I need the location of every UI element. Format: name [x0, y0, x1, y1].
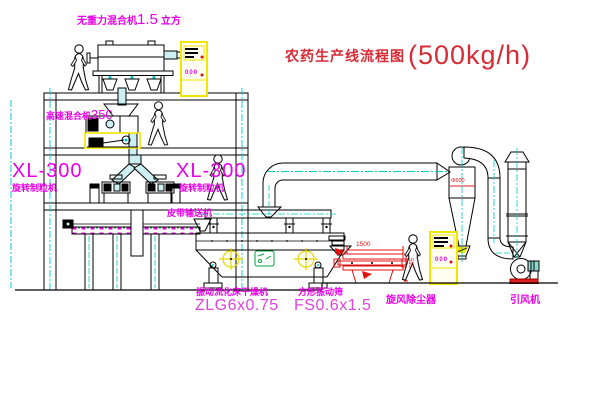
sieve-name: 方形振动筛 — [298, 288, 343, 297]
granulator-right-name: 旋转制粒机 — [179, 184, 224, 193]
worker-1 — [69, 45, 89, 90]
sieve-width-dimension: 1500 — [356, 242, 370, 249]
page-title: 农药生产线流程图 (500kg/h) — [285, 42, 531, 69]
gravity-mixer-name: 无重力混合机 — [77, 16, 137, 27]
fan-label: 引风机 — [510, 296, 540, 306]
high-speed-mixer-name: 高速混合机 — [46, 111, 91, 121]
green-stamp-icon — [255, 251, 274, 266]
flow-diagram-canvas: 无重力混合机1.5立方 农药生产线流程图 (500kg/h) 高速混合机350 … — [0, 0, 600, 403]
dryer-name: 振动流化床干燥机 — [196, 288, 268, 297]
exhaust-stack-drawing — [505, 148, 529, 262]
belt-conveyor-label: 皮带输送机 — [167, 209, 212, 218]
sieve-height-dimension: 595 — [407, 258, 413, 268]
high-speed-mixer-label: 高速混合机350 — [46, 107, 113, 123]
title-text: 农药生产线流程图 — [285, 49, 405, 63]
y-pipe — [112, 155, 158, 184]
dryer-model: ZLG6x0.75 — [195, 298, 279, 314]
control-cabinet-1-drawing — [181, 42, 207, 96]
vibrating-sieve-drawing — [334, 246, 408, 283]
gravity-mixer-label: 无重力混合机1.5立方 — [77, 12, 181, 28]
cabinet-1-indicator: 000 — [185, 70, 198, 76]
worker-2 — [148, 102, 167, 145]
granulator-left-name: 旋转制粒机 — [12, 184, 57, 193]
drop-chute — [131, 210, 143, 256]
gravity-mixer-unit: 立方 — [161, 16, 181, 27]
ground-line — [15, 283, 558, 290]
fluid-bed-dryer-drawing — [194, 210, 351, 288]
high-speed-mixer-size: 350 — [91, 107, 113, 122]
exhaust-duct — [258, 163, 450, 217]
cyclone-dimension: Φ500 — [451, 179, 465, 185]
cabinet-2-indicator: 000 — [435, 257, 448, 263]
gravity-mixer-drawing — [87, 41, 181, 105]
cyclone-to-fan-pipe — [464, 147, 513, 259]
sieve-model: FS0.6x1.5 — [294, 298, 371, 314]
granulator-right-model: XL-300 — [176, 161, 247, 181]
title-capacity: (500kg/h) — [408, 42, 531, 69]
cyclone-label: 旋风除尘器 — [386, 296, 436, 306]
granulator-left-model: XL-300 — [12, 161, 83, 181]
fan-drawing — [510, 259, 539, 284]
gravity-mixer-size: 1.5 — [137, 11, 158, 28]
